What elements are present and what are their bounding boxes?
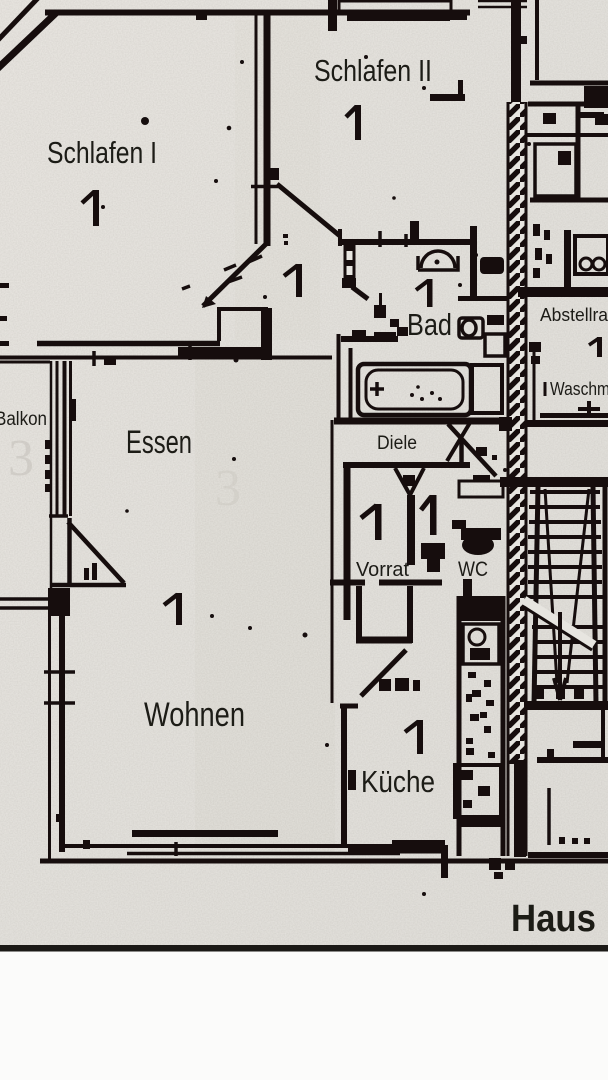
svg-text:3: 3 xyxy=(215,460,241,517)
svg-text:Essen: Essen xyxy=(126,424,192,460)
svg-text:Küche: Küche xyxy=(361,764,435,799)
svg-text:Schlafen I: Schlafen I xyxy=(47,135,157,170)
svg-text:Abstellra: Abstellra xyxy=(540,305,608,325)
svg-text:Balkon: Balkon xyxy=(0,409,47,430)
svg-text:3: 3 xyxy=(8,430,34,487)
svg-text:Bad: Bad xyxy=(407,307,452,342)
svg-text:WC: WC xyxy=(458,558,488,581)
svg-text:Wohnen: Wohnen xyxy=(144,696,245,734)
svg-text:Diele: Diele xyxy=(377,433,417,454)
svg-text:Waschm: Waschm xyxy=(550,379,608,399)
svg-text:Haus: Haus xyxy=(511,898,596,940)
svg-text:Schlafen II: Schlafen II xyxy=(314,53,432,88)
svg-text:Vorrat: Vorrat xyxy=(356,559,409,581)
